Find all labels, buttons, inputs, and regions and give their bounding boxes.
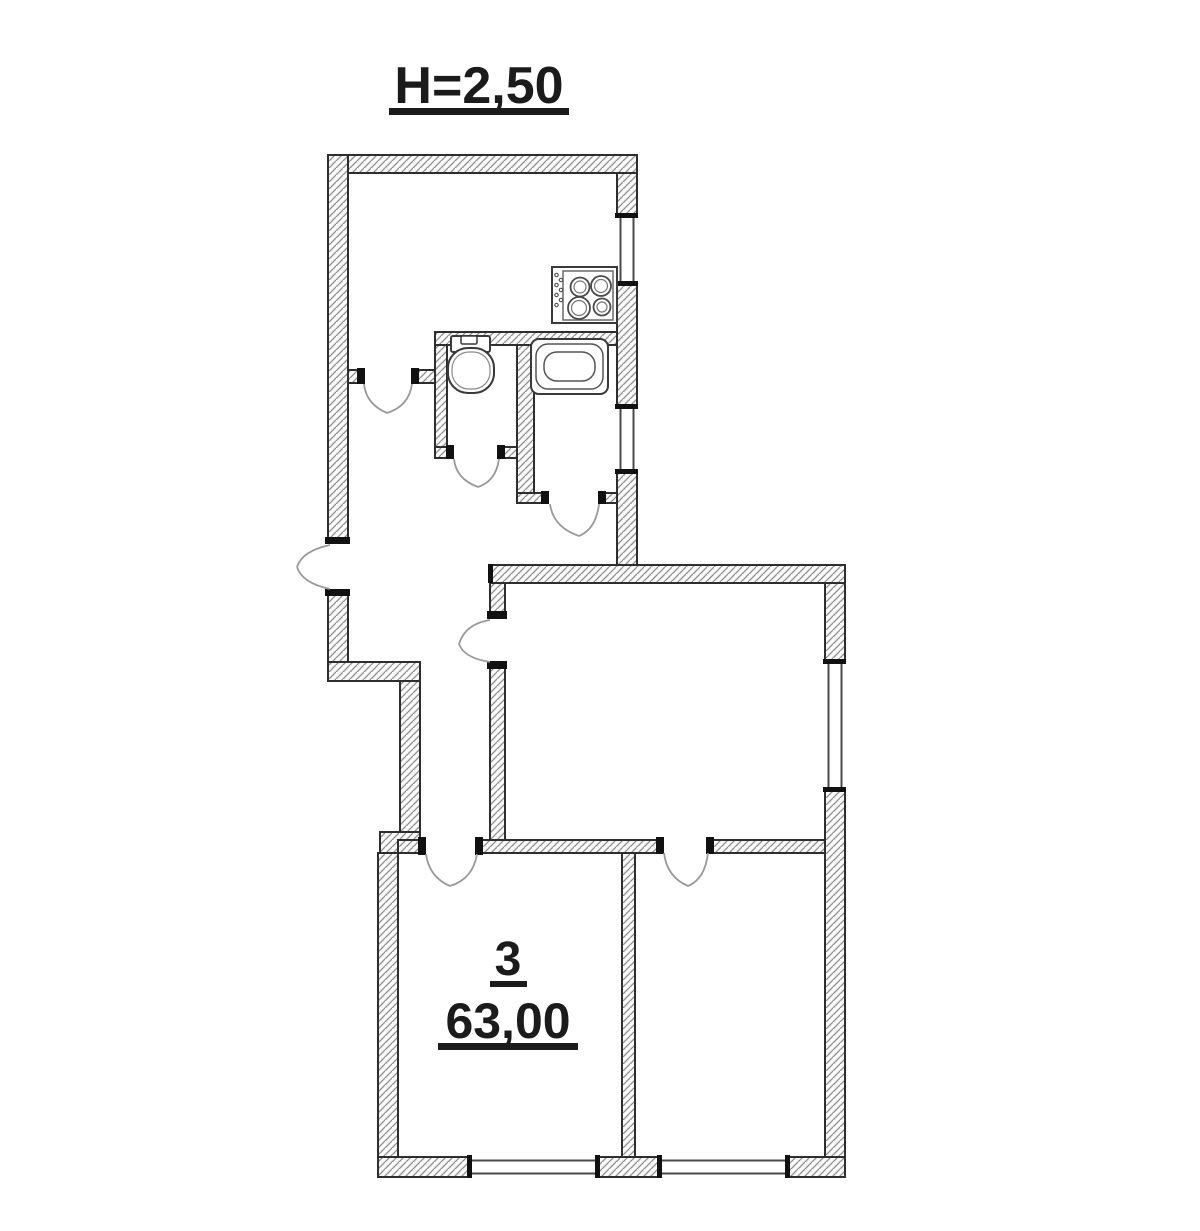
floor-plan-page: Н=2,50 3 63,00 <box>0 0 1200 1231</box>
room-area-label: 63,00 <box>445 993 570 1049</box>
wall-bottom-left-corner <box>378 1157 470 1177</box>
bath-door-arc <box>550 504 599 536</box>
wall-right-seg3 <box>617 472 637 565</box>
stove-icon <box>552 267 617 323</box>
room-number-label: 3 <box>495 933 522 986</box>
room-left-door-arc <box>426 854 477 886</box>
wall-livingroom-top <box>490 565 845 583</box>
room-number-underline <box>490 981 527 987</box>
wall-bottom-pier <box>597 1157 660 1177</box>
wall-room-left <box>378 853 398 1157</box>
wall-wc-left <box>435 345 447 458</box>
ceiling-height-underline <box>389 108 569 115</box>
toilet-icon <box>448 336 494 393</box>
window-livingroom <box>823 659 846 792</box>
floor-plan-drawing: Н=2,50 3 63,00 <box>0 0 1200 1231</box>
entrance-door-arc <box>297 545 330 589</box>
wall-top <box>328 155 637 173</box>
kitchen-door-arc <box>364 384 412 413</box>
wall-right-lr-seg1 <box>825 583 845 662</box>
room-area-underline <box>438 1043 578 1050</box>
ceiling-height-label: Н=2,50 <box>394 57 563 115</box>
wall-right-seg2 <box>617 284 637 407</box>
wall-rooms-top-right <box>709 840 825 853</box>
room-right-door-arc <box>664 853 708 886</box>
wall-rooms-top-mid <box>478 840 663 853</box>
wall-left-lower <box>328 590 348 664</box>
window-room-right <box>657 1155 790 1178</box>
window-room-left <box>467 1155 600 1178</box>
wall-left-upper <box>328 155 348 543</box>
window-bathroom <box>615 404 638 474</box>
wall-rooms-divider <box>622 853 635 1157</box>
wc-door-arc <box>454 459 499 487</box>
bathtub-icon <box>531 339 608 394</box>
wall-bottom-right-corner <box>787 1157 845 1177</box>
wall-right-lr-seg2 <box>825 790 845 1157</box>
wall-right-seg1 <box>617 173 637 216</box>
wall-hall-step-v <box>400 681 420 833</box>
wall-lr-left-lower <box>490 663 505 840</box>
livingroom-door-arc <box>459 620 490 662</box>
wall-hall-step-h <box>328 662 420 681</box>
window-kitchen <box>615 213 638 286</box>
